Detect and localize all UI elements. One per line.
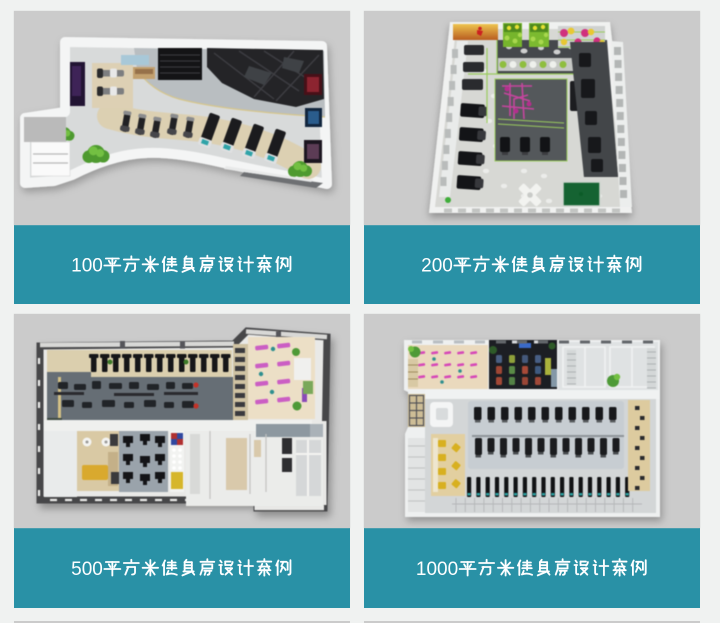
svg-text:200: 200	[421, 255, 453, 276]
svg-text:100: 100	[71, 255, 103, 276]
svg-text:1000: 1000	[416, 559, 458, 580]
svg-text:500: 500	[71, 559, 103, 580]
